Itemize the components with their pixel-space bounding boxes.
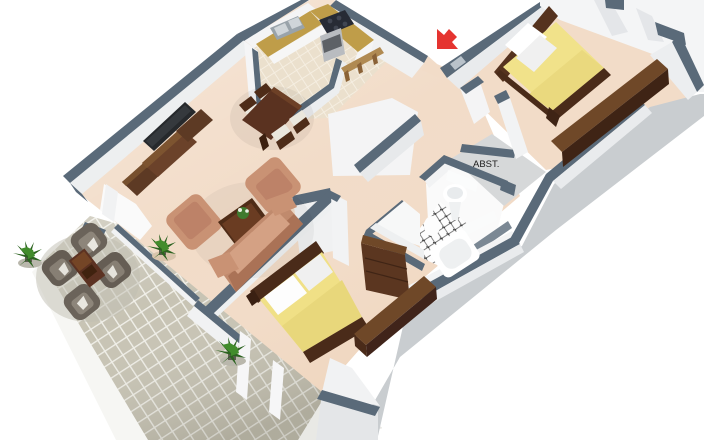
svg-text:ABST.: ABST. (473, 159, 499, 170)
